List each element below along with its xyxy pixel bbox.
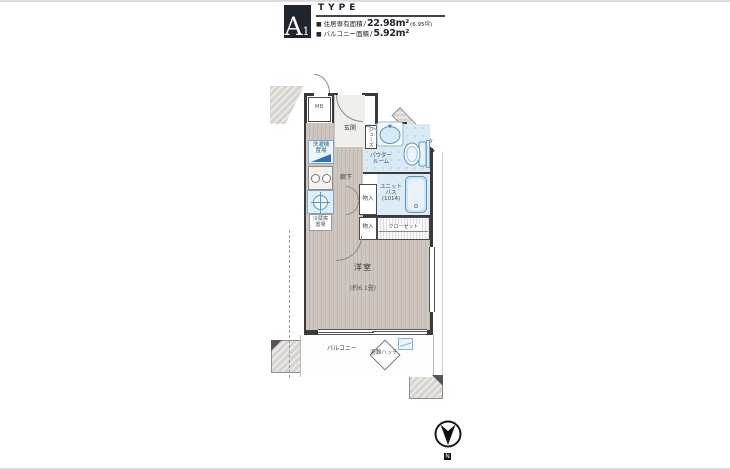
washer-symbol xyxy=(311,154,331,162)
area-line-balcony: ■ バルコニー面積 / 5.92m² xyxy=(316,28,410,39)
meter-box-door-arc xyxy=(314,74,330,93)
entrance-label: 玄関 xyxy=(336,126,364,133)
closet-label: クローゼット xyxy=(379,225,428,231)
area-value: 5.92m² xyxy=(373,28,409,39)
shoe-closet-label: シューズ xyxy=(367,127,373,147)
stove-burners xyxy=(308,166,333,190)
square-bullet-icon: ■ xyxy=(316,21,322,28)
wall xyxy=(304,93,307,125)
floorplan-drawing: 洗濯機 置場 冷蔵庫 置場 xyxy=(270,62,470,410)
refrigerator-area: 冷蔵庫 置場 xyxy=(309,214,332,231)
drain-icon xyxy=(414,204,418,208)
area-note: (6.95坪) xyxy=(410,20,432,28)
unit-letter: A xyxy=(284,15,302,39)
unit-bath-label-line: バス xyxy=(385,190,396,196)
western-room-floor xyxy=(306,234,430,330)
washbasin xyxy=(376,121,404,147)
toilet-side-panel xyxy=(426,140,430,168)
western-room-label: 洋室 xyxy=(348,264,378,273)
slop-sink-line xyxy=(400,342,412,347)
slop-sink xyxy=(398,338,413,350)
powder-room-label-line: ルーム xyxy=(373,159,389,165)
unit-bath-label-line: (1014) xyxy=(382,196,400,202)
north-arrow-icon xyxy=(433,418,463,452)
square-bullet-icon: ■ xyxy=(316,31,322,38)
balcony-floor xyxy=(300,335,434,377)
area-label: バルコニー面積 xyxy=(324,28,369,38)
hallway-label: 廊下 xyxy=(334,175,358,182)
kitchen-sink xyxy=(307,190,334,214)
type-label: TYPE xyxy=(318,3,359,13)
right-wall-window xyxy=(429,247,435,312)
bathtub xyxy=(405,176,427,213)
header-rule xyxy=(316,15,445,17)
western-room-size-label: (約6.1畳) xyxy=(343,286,383,293)
unit-type-badge: A1 xyxy=(283,5,311,39)
washing-machine-area: 洗濯機 置場 xyxy=(308,140,334,164)
outside-structure-top-left xyxy=(270,86,304,124)
area-label: 住居専有面積 xyxy=(324,18,363,28)
faucet-line xyxy=(311,202,330,203)
area-separator: / xyxy=(364,20,366,28)
compass: N xyxy=(433,418,463,464)
floorplan-page: A1 TYPE ■ 住居専有面積 / 22.98m² (6.95坪) ■ バルコ… xyxy=(0,0,730,470)
powder-room-label: パウダー ルーム xyxy=(365,153,397,165)
burner-icon xyxy=(322,174,331,183)
unit-bath-label: ユニット バス (1014) xyxy=(378,184,404,202)
outer-boundary-line xyxy=(442,152,443,375)
washer-label: 置場 xyxy=(315,148,326,154)
window-sash-line xyxy=(318,332,374,333)
unit-number: 1 xyxy=(303,24,310,39)
closet-label-text: クローゼット xyxy=(387,224,419,230)
storage-lower-label: 物入 xyxy=(359,224,377,230)
window-sash-line xyxy=(372,331,427,332)
evacuation-hatch-label: 避難ハッチ xyxy=(369,350,399,356)
closet-hanger-pipe xyxy=(379,231,428,232)
fridge-label: 置場 xyxy=(315,222,325,228)
compass-n-label: N xyxy=(444,453,451,460)
toilet xyxy=(403,136,427,172)
boundary-dashed-line xyxy=(289,230,290,378)
storage-upper-label: 物入 xyxy=(359,196,377,202)
area-separator: / xyxy=(370,30,372,38)
balcony-label: バルコニー xyxy=(322,346,362,353)
meter-box-label: MB xyxy=(308,104,330,110)
burner-icon xyxy=(311,174,320,183)
